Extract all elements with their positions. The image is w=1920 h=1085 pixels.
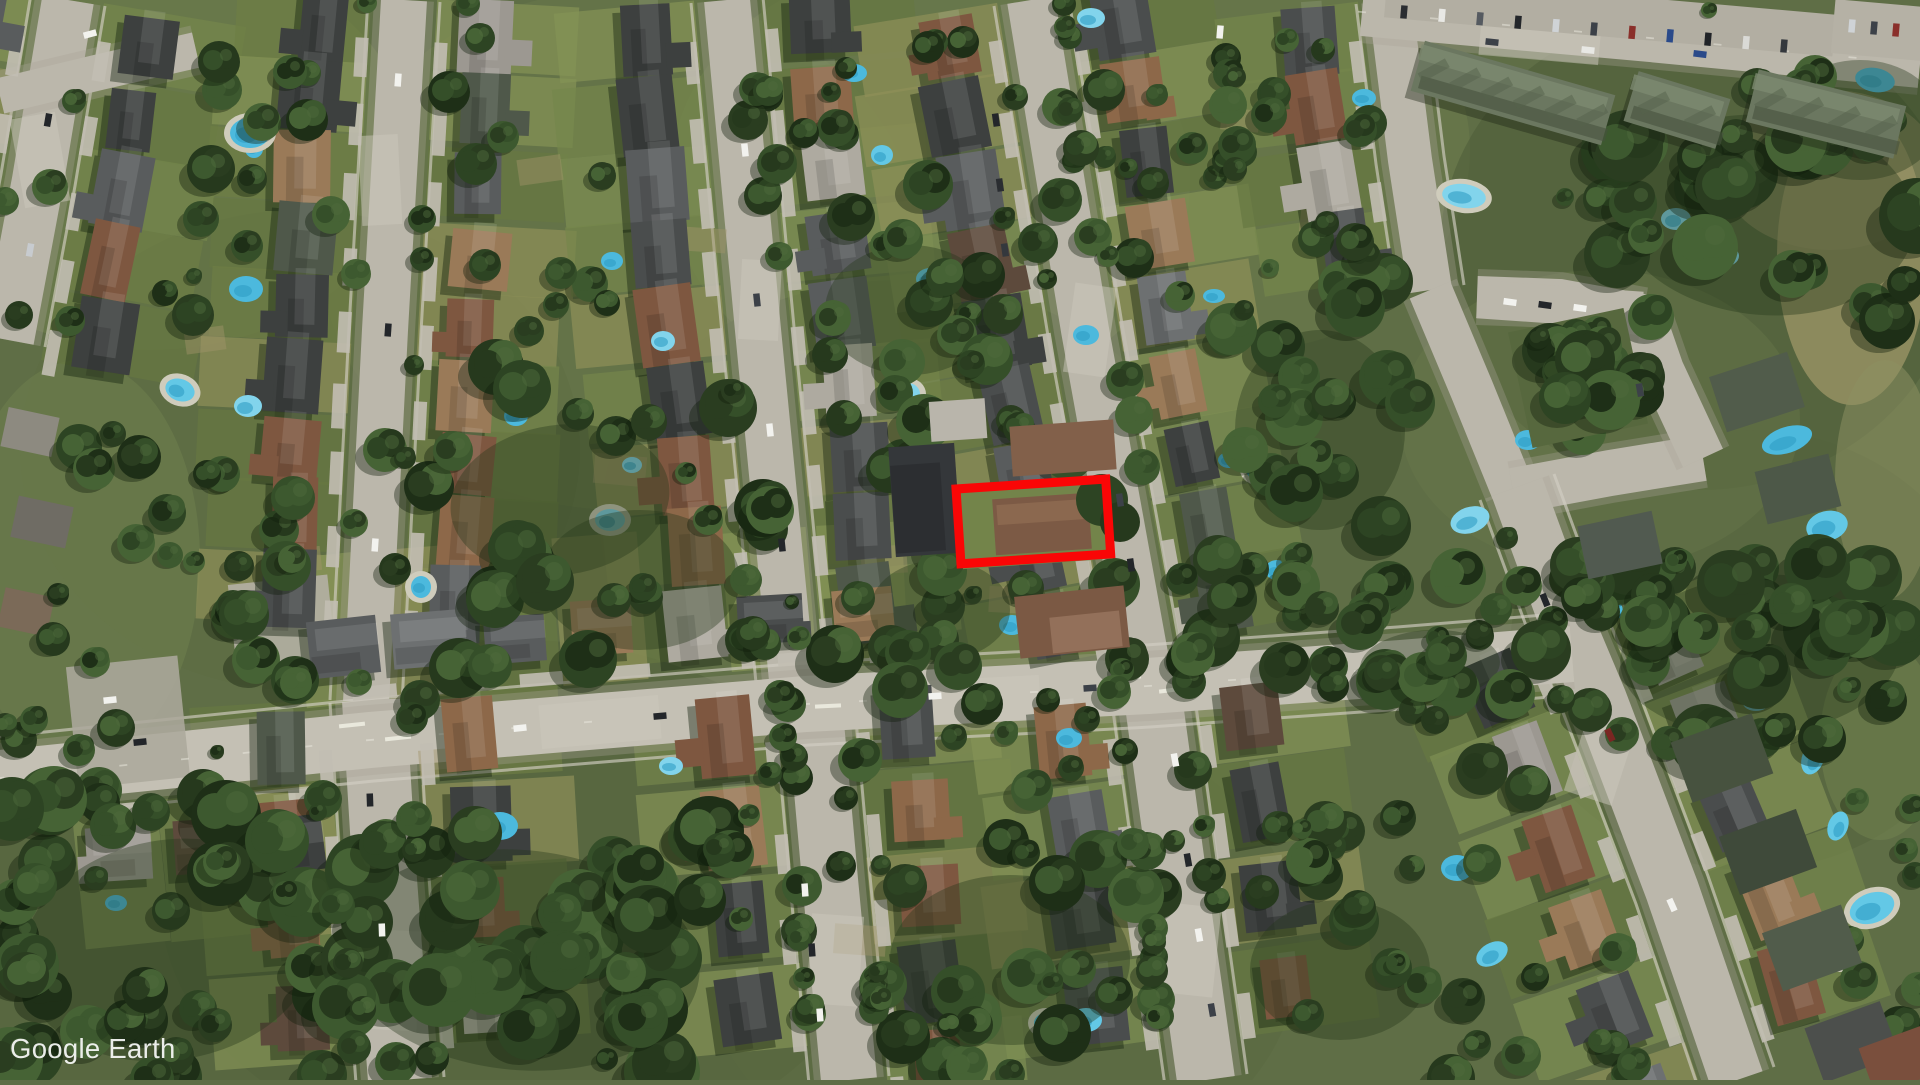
svg-text:Google Earth: Google Earth	[10, 1033, 176, 1064]
